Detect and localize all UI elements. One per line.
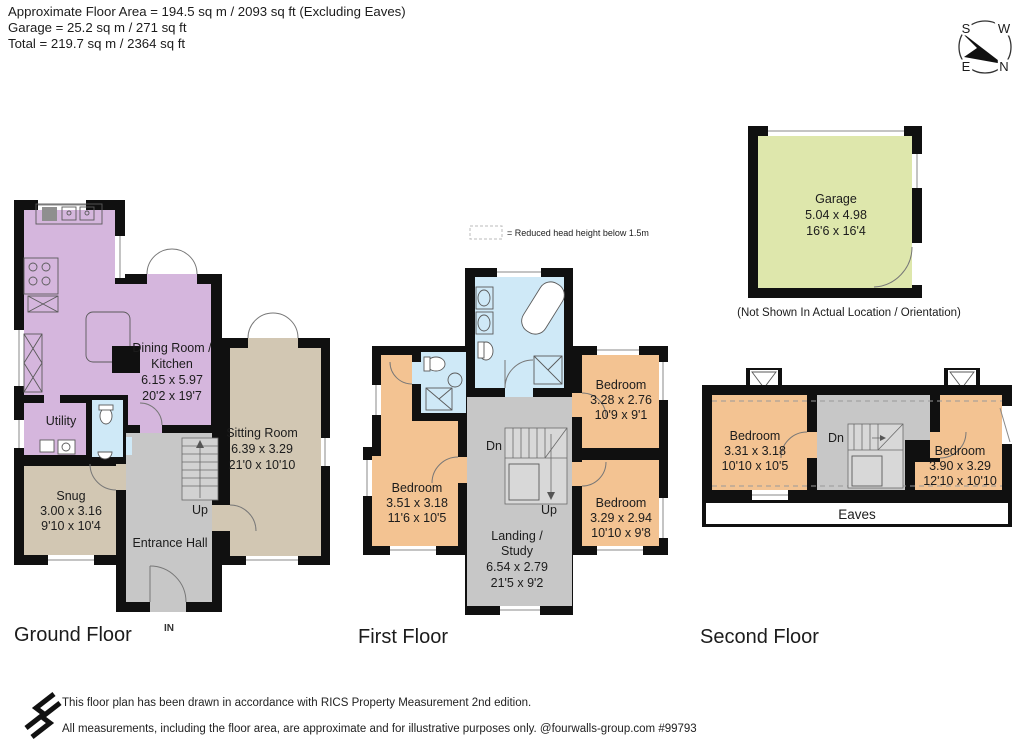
bedroom-left-dims-ft: 11'6 x 10'5	[388, 511, 447, 525]
bedroom-left-name: Bedroom	[392, 481, 443, 495]
landing-study-name-2: Study	[501, 544, 534, 558]
compass-n: N	[999, 59, 1008, 74]
garage-side-door-opening	[912, 243, 922, 285]
total-area-text: Total = 219.7 sq m / 2364 sq ft	[8, 36, 185, 51]
sitting-room-dims-ft: 21'0 x 10'10	[229, 458, 296, 472]
stairs-dn-2f-label: Dn	[828, 431, 844, 445]
snug-dims-m: 3.00 x 3.16	[40, 504, 102, 518]
entrance-in-label: IN	[164, 623, 174, 634]
landing-study-name-1: Landing /	[491, 529, 543, 543]
ground-floor-stairs	[182, 438, 218, 500]
snug-name: Snug	[56, 489, 85, 503]
disclaimer-line-2: All measurements, including the floor ar…	[62, 723, 697, 735]
stairs-up-label: Up	[541, 503, 557, 517]
garage-dims-ft: 16'6 x 16'4	[806, 224, 866, 238]
first-floor-title: First Floor	[358, 626, 448, 648]
bedroom-bottom-right-dims-m: 3.29 x 2.94	[590, 511, 652, 525]
legend-swatch	[470, 226, 502, 239]
legend-label: = Reduced head height below 1.5m	[507, 228, 649, 238]
bedroom-left-dims-m: 3.51 x 3.18	[386, 496, 448, 510]
bedroom-top-right-dims-m: 3.28 x 2.76	[590, 393, 652, 407]
stairs-dn-label: Dn	[486, 439, 502, 453]
garage-dims-m: 5.04 x 4.98	[805, 208, 867, 222]
dining-kitchen-name-2: Kitchen	[151, 357, 193, 371]
landing-study-dims-ft: 21'5 x 9'2	[491, 576, 544, 590]
garage-plan: Garage 5.04 x 4.98 16'6 x 16'4 (Not Show…	[737, 126, 961, 319]
sitting-room-dims-m: 6.39 x 3.29	[231, 442, 293, 456]
eaves-label: Eaves	[838, 507, 876, 522]
floorplan-canvas: Approximate Floor Area = 194.5 sq m / 20…	[0, 0, 1024, 739]
first-floor-plan: Bedroom 3.51 x 3.18 11'6 x 10'5 Bedroom …	[358, 268, 668, 648]
bedroom-right-2f-name: Bedroom	[935, 444, 986, 458]
dining-kitchen-name-1: Dining Room /	[132, 341, 212, 355]
bedroom-top-right-dims-ft: 10'9 x 9'1	[595, 408, 648, 422]
legend-reduced-head-height: = Reduced head height below 1.5m	[470, 226, 649, 239]
disclaimer-line-1: This floor plan has been drawn in accord…	[62, 697, 531, 709]
sitting-room-name: Sitting Room	[226, 426, 298, 440]
floorplan-page: Approximate Floor Area = 194.5 sq m / 20…	[0, 0, 1024, 739]
garage-name: Garage	[815, 192, 857, 206]
landing-study-dims-m: 6.54 x 2.79	[486, 560, 548, 574]
ground-floor-title: Ground Floor	[14, 624, 132, 646]
first-floor-stairs	[505, 428, 567, 504]
compass-w: W	[998, 21, 1011, 36]
bedroom-bottom-right-name: Bedroom	[596, 496, 647, 510]
bedroom-bottom-right-dims-ft: 10'10 x 9'8	[591, 526, 651, 540]
eaves-strip: Eaves	[702, 500, 1012, 527]
snug-dims-ft: 9'10 x 10'4	[41, 519, 101, 533]
dining-kitchen-dims-ft: 20'2 x 19'7	[142, 389, 202, 403]
dining-kitchen-dims-m: 6.15 x 5.97	[141, 373, 203, 387]
room-utility	[24, 403, 86, 455]
utility-door-opening	[44, 395, 60, 403]
bedroom-left-2f-dims-ft: 10'10 x 10'5	[722, 459, 789, 473]
bedroom-left-2f-dims-m: 3.31 x 3.18	[724, 444, 786, 458]
footer: This floor plan has been drawn in accord…	[26, 694, 697, 737]
entrance-hall-name: Entrance Hall	[132, 536, 207, 550]
stairs-up-label: Up	[192, 503, 208, 517]
bedroom-right-2f-dims-m: 3.90 x 3.29	[929, 459, 991, 473]
garage-note: (Not Shown In Actual Location / Orientat…	[737, 307, 961, 319]
compass-e: E	[962, 59, 971, 74]
second-floor-stairs	[848, 424, 903, 488]
bedroom-right-2f-dims-ft: 12'10 x 10'10	[923, 474, 997, 488]
compass-rose: S W E N	[959, 21, 1011, 74]
area-summary: Approximate Floor Area = 194.5 sq m / 20…	[8, 4, 406, 51]
bedroom-top-right-name: Bedroom	[596, 378, 647, 392]
bedroom-left-2f-name: Bedroom	[730, 429, 781, 443]
utility-name: Utility	[46, 414, 77, 428]
second-floor-plan: Eaves Bedroom 3.31 x 3.18 10'10 x 10'5 B…	[700, 368, 1012, 648]
compass-s: S	[962, 21, 971, 36]
ground-floor-plan: Dining Room / Kitchen 6.15 x 5.97 20'2 x…	[14, 200, 330, 646]
fourwalls-logo-icon	[26, 694, 60, 737]
garage-area-text: Garage = 25.2 sq m / 271 sq ft	[8, 20, 187, 35]
total-floor-area-text: Approximate Floor Area = 194.5 sq m / 20…	[8, 4, 406, 19]
second-floor-title: Second Floor	[700, 626, 819, 648]
